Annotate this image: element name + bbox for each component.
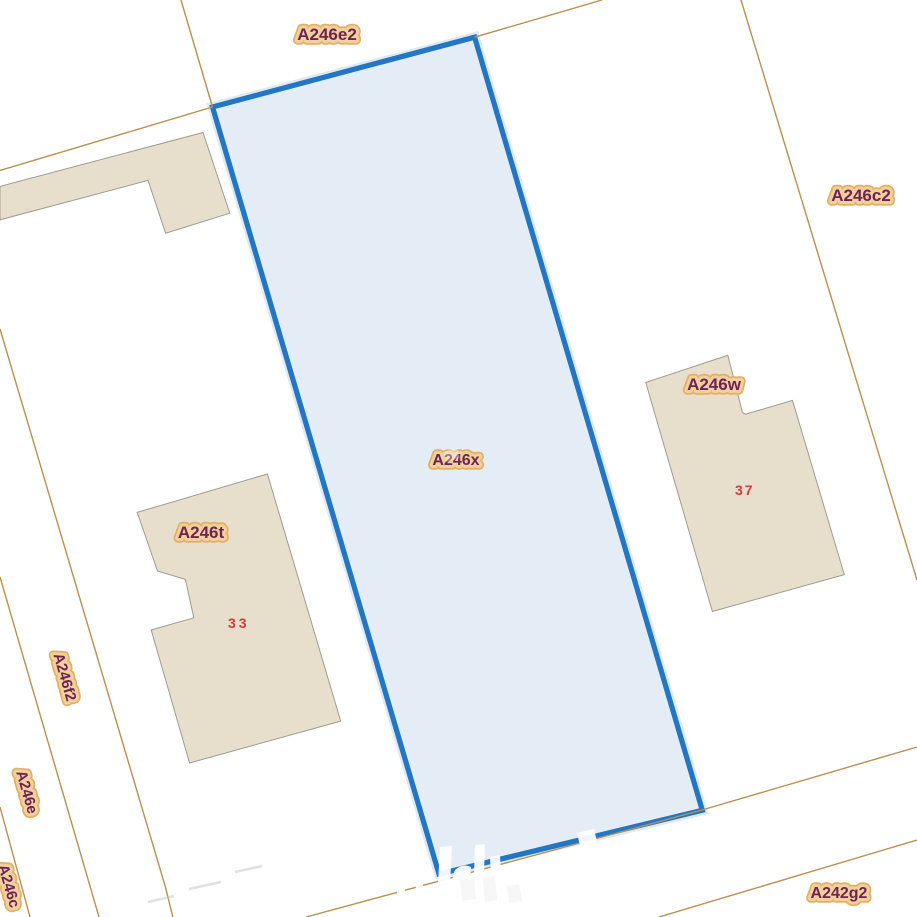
svg-text:A246e2: A246e2 [297, 25, 357, 44]
svg-text:33: 33 [228, 615, 250, 631]
svg-text:37: 37 [735, 482, 755, 498]
svg-text:A246t: A246t [178, 523, 225, 542]
svg-text:A246w: A246w [687, 375, 742, 394]
svg-text:A242g2: A242g2 [811, 885, 868, 902]
svg-text:A246c2: A246c2 [831, 186, 891, 205]
